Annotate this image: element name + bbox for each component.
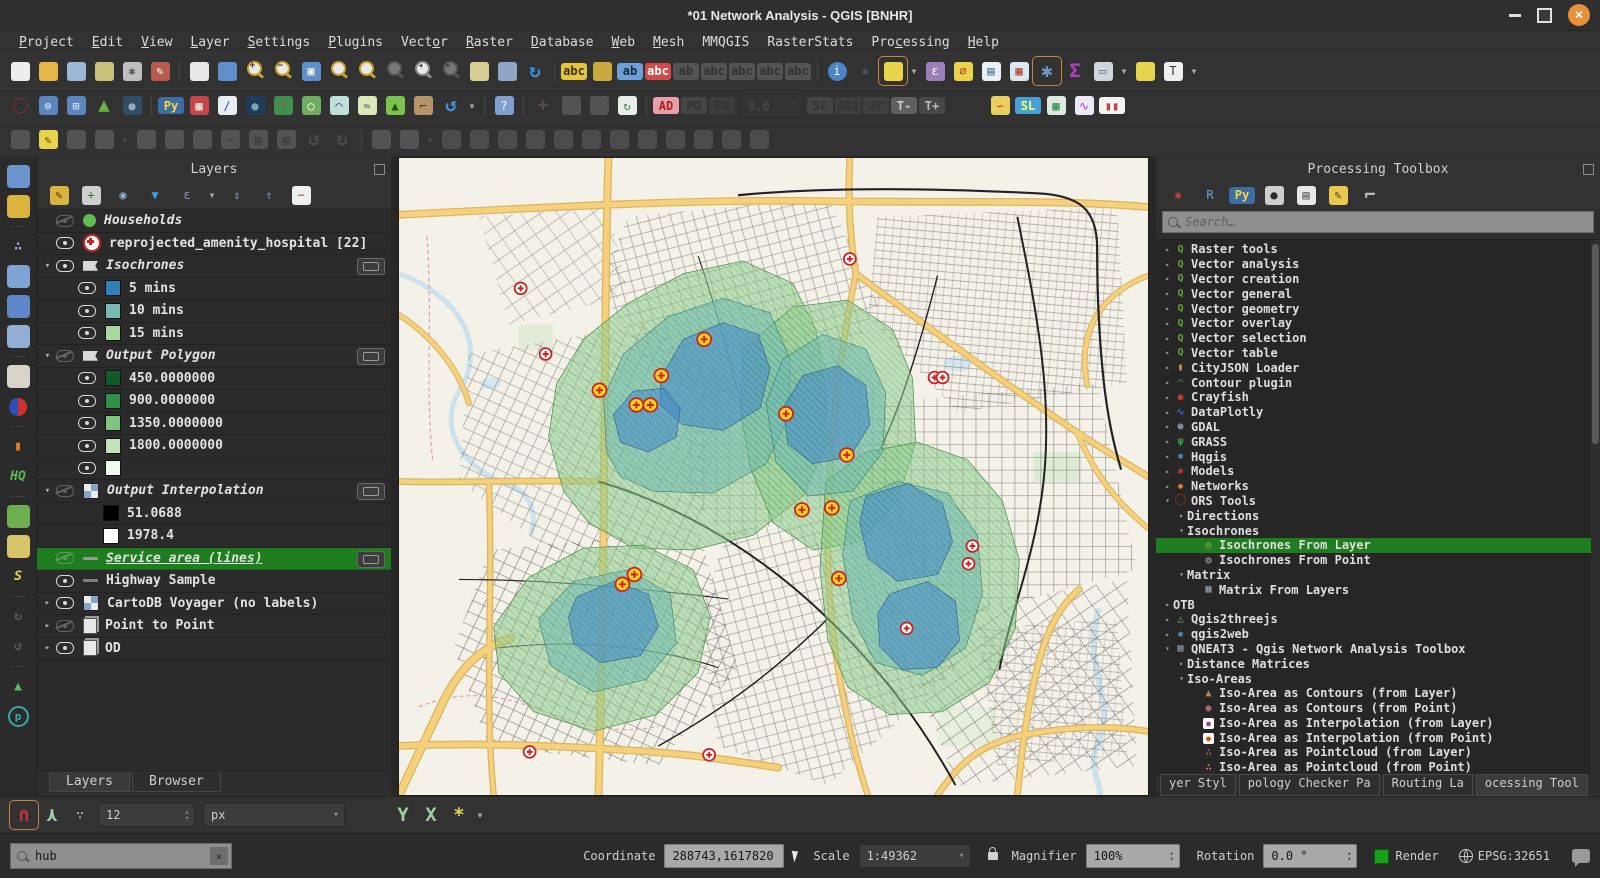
expander-icon[interactable]: ▸ bbox=[1162, 363, 1173, 372]
messages-icon[interactable] bbox=[1572, 849, 1590, 863]
zoom-last-icon[interactable]: ◂ bbox=[410, 58, 436, 84]
algorithm-label: QNEAT3 - Qgis Network Analysis Toolbox bbox=[1191, 642, 1466, 656]
expander-icon[interactable]: ▸ bbox=[1162, 630, 1173, 639]
expression-menu-icon[interactable]: ▾ bbox=[206, 182, 218, 208]
clear-search-icon[interactable]: × bbox=[210, 847, 228, 865]
visibility-eye-icon[interactable] bbox=[56, 597, 74, 609]
expander-icon[interactable]: ▸ bbox=[1162, 452, 1173, 461]
style-manager-icon[interactable]: ✎ bbox=[147, 58, 173, 84]
select-by-expression-icon[interactable]: ε bbox=[922, 58, 948, 84]
qneat-hill-icon[interactable]: ▲ bbox=[382, 93, 408, 119]
attribute-refresh-icon[interactable]: ↻ bbox=[614, 93, 640, 119]
expander-icon[interactable]: ▾ bbox=[1176, 570, 1187, 579]
algorithm-label: Iso-Area as Interpolation (from Layer) bbox=[1219, 716, 1494, 730]
web-service-icon[interactable]: ⊞ bbox=[63, 93, 89, 119]
add-group-icon[interactable]: + bbox=[78, 182, 104, 208]
dock-tab-browser[interactable]: Browser bbox=[132, 772, 221, 792]
expander-icon[interactable]: ▾ bbox=[1176, 526, 1187, 535]
toggle-editing-icon[interactable]: ✎ bbox=[35, 127, 61, 153]
move-label-icon: ab bbox=[673, 58, 699, 84]
edit-features-in-place-icon[interactable]: ✎ bbox=[1325, 182, 1351, 208]
zoom-to-layer-icon[interactable] bbox=[354, 58, 380, 84]
refresh-map-icon[interactable]: ↻ bbox=[522, 58, 548, 84]
visibility-eye-icon[interactable] bbox=[78, 372, 96, 384]
annotation-menu-icon[interactable]: ▾ bbox=[1188, 58, 1200, 84]
expander-icon[interactable]: ▸ bbox=[1162, 408, 1173, 417]
osm-place-search-icon[interactable]: ● bbox=[119, 93, 145, 119]
map-tips-icon[interactable] bbox=[1132, 58, 1158, 84]
zoom-out-icon[interactable]: − bbox=[270, 58, 296, 84]
coordinate-input[interactable]: 288743,1617820 bbox=[664, 844, 784, 868]
layer-row[interactable]: 1978.4 bbox=[37, 525, 391, 548]
layer-row[interactable]: ▾Output Interpolation bbox=[37, 480, 391, 503]
topological-editing-icon[interactable]: ⋏ bbox=[39, 802, 65, 828]
search-layers-icon[interactable]: ○ bbox=[298, 93, 324, 119]
contour-plugin-icon[interactable]: ∽ bbox=[987, 93, 1013, 119]
sld4raster-icon[interactable]: SL bbox=[1015, 93, 1041, 119]
build-tool-icon[interactable]: ⌐ bbox=[410, 93, 436, 119]
filter-legend-icon[interactable]: ▼ bbox=[142, 182, 168, 208]
algorithm-row[interactable]: ▸✱Hqgis bbox=[1156, 449, 1591, 464]
algorithm-label: Networks bbox=[1191, 479, 1249, 493]
deselect-features-icon[interactable]: ∅ bbox=[950, 58, 976, 84]
layer-symbol bbox=[105, 303, 121, 319]
visibility-eye-icon[interactable] bbox=[56, 552, 74, 564]
history-icon[interactable]: ● bbox=[1261, 182, 1287, 208]
vertex-marker-menu-icon[interactable]: ▾ bbox=[474, 802, 486, 828]
expander-icon[interactable]: ▸ bbox=[1162, 482, 1173, 491]
enable-snapping-icon[interactable]: ∩ bbox=[11, 802, 37, 828]
hqgis-icon[interactable]: HQ bbox=[7, 465, 30, 488]
layer-diagram-icon[interactable] bbox=[589, 58, 615, 84]
gdrive-layers-icon[interactable]: ▲ bbox=[7, 675, 30, 698]
expander-icon[interactable]: ▸ bbox=[1176, 511, 1187, 520]
algorithm-row[interactable]: ▾ORS Tools bbox=[1156, 494, 1591, 509]
qgis-window: *01 Network Analysis - QGIS [BNHR] × Pro… bbox=[0, 0, 1600, 878]
algorithm-row[interactable]: ●Iso-Area as Interpolation (from Point) bbox=[1156, 730, 1591, 745]
visibility-eye-icon[interactable] bbox=[56, 485, 74, 497]
crs-globe-icon[interactable] bbox=[1459, 849, 1473, 863]
algorithm-row[interactable]: ▸ψGRASS bbox=[1156, 434, 1591, 449]
processing-tree[interactable]: ▸QRaster tools▸QVector analysis▸QVector … bbox=[1156, 240, 1591, 774]
p-circle-icon[interactable]: p bbox=[7, 705, 30, 728]
layer-row[interactable]: ▸OD bbox=[37, 638, 391, 661]
mmqgis-grid-icon[interactable]: ▦ bbox=[186, 93, 212, 119]
menu-layer[interactable]: Layer bbox=[181, 34, 238, 51]
expander-icon[interactable]: ▸ bbox=[1162, 348, 1173, 357]
measure-menu-icon[interactable]: ▾ bbox=[1118, 58, 1130, 84]
algorithm-row[interactable]: ▲Iso-Area as Contours (from Layer) bbox=[1156, 686, 1591, 701]
menu-database[interactable]: Database bbox=[522, 34, 603, 51]
magnifier-spinbox[interactable]: 100%▴▾ bbox=[1086, 844, 1180, 868]
visibility-eye-icon[interactable] bbox=[78, 440, 96, 452]
algorithm-row[interactable]: ▸∿DataPlotly bbox=[1156, 405, 1591, 420]
algorithm-row[interactable]: ▸QVector general bbox=[1156, 286, 1591, 301]
python-console-icon[interactable]: Py bbox=[158, 93, 184, 119]
profile-tool-icon[interactable]: ∿ bbox=[1071, 93, 1097, 119]
help-contents-icon[interactable]: ? bbox=[491, 93, 517, 119]
expander-icon[interactable]: ▾ bbox=[41, 261, 54, 271]
text-smaller-button[interactable]: T- bbox=[891, 93, 917, 119]
layer-symbol bbox=[105, 370, 121, 386]
add-layer-icon[interactable] bbox=[7, 165, 30, 188]
algorithm-row[interactable]: ▸✱Models bbox=[1156, 464, 1591, 479]
algorithm-row[interactable]: ▸QVector overlay bbox=[1156, 316, 1591, 331]
maximize-button[interactable] bbox=[1537, 8, 1552, 23]
menu-project[interactable]: Project bbox=[10, 34, 83, 51]
expander-icon[interactable]: ▸ bbox=[1162, 378, 1173, 387]
expander-icon[interactable]: ▸ bbox=[1162, 393, 1173, 402]
menu-plugins[interactable]: Plugins bbox=[319, 34, 392, 51]
expander-icon[interactable]: ▸ bbox=[1162, 245, 1173, 254]
algorithm-row[interactable]: ▸QVector table bbox=[1156, 346, 1591, 361]
visibility-eye-icon[interactable] bbox=[78, 462, 96, 474]
layer-row[interactable]: ▸Point to Point bbox=[37, 615, 391, 638]
save-project-icon[interactable] bbox=[63, 58, 89, 84]
algorithm-row[interactable]: ∴Iso-Area as Pointcloud (from Point) bbox=[1156, 760, 1591, 774]
expander-icon[interactable]: ▾ bbox=[1162, 496, 1173, 505]
ors-tools-icon[interactable] bbox=[7, 93, 33, 119]
algorithm-label: Hqgis bbox=[1191, 450, 1227, 464]
algorithm-row[interactable]: ▸▮CityJSON Loader bbox=[1156, 360, 1591, 375]
search-plugin-icon[interactable] bbox=[7, 505, 30, 528]
menu-processing[interactable]: Processing bbox=[862, 34, 958, 51]
layer-symbol bbox=[83, 483, 99, 499]
rotation-spinbox[interactable]: 0.0 °▴▾ bbox=[1263, 844, 1357, 868]
layer-symbol bbox=[83, 579, 98, 582]
statistical-summary-icon[interactable]: Σ bbox=[1062, 58, 1088, 84]
text-annotation-icon[interactable]: T bbox=[1160, 58, 1186, 84]
models-icon[interactable]: ✱ bbox=[1165, 182, 1191, 208]
expander-icon[interactable]: ▸ bbox=[1162, 289, 1173, 298]
layers-panel-header: Layers bbox=[37, 157, 391, 181]
expander-icon[interactable]: ▸ bbox=[1162, 437, 1173, 446]
iso-heat2-icon: ● bbox=[1201, 732, 1216, 744]
pan-to-selection-icon[interactable] bbox=[214, 58, 240, 84]
zoom-to-selection-icon[interactable] bbox=[326, 58, 352, 84]
collapse-all-icon[interactable]: ⇑ bbox=[256, 182, 282, 208]
algorithm-row[interactable]: ▾Isochrones bbox=[1156, 523, 1591, 538]
visibility-eye-icon[interactable] bbox=[78, 327, 96, 339]
dock-tab[interactable]: pology Checker Pa bbox=[1239, 774, 1380, 796]
menu-mmqgis[interactable]: MMQGIS bbox=[693, 34, 758, 51]
minimize-button[interactable] bbox=[1509, 14, 1521, 17]
layer-label: Output Polygon bbox=[106, 348, 216, 363]
detach-panel-icon[interactable] bbox=[374, 164, 385, 175]
algorithm-row[interactable]: ▸✱qgis2web bbox=[1156, 627, 1591, 642]
expand-all-icon[interactable]: ⇕ bbox=[224, 182, 250, 208]
algorithm-row[interactable]: ●Iso-Area as Interpolation (from Layer) bbox=[1156, 716, 1591, 731]
measure-line-icon[interactable]: ▭ bbox=[1090, 58, 1116, 84]
undo-style-icon[interactable]: ↺ bbox=[438, 93, 464, 119]
layer-label: 1978.4 bbox=[127, 528, 174, 543]
visibility-eye-icon[interactable] bbox=[78, 417, 96, 429]
highlight-labels-icon[interactable]: abc bbox=[645, 58, 671, 84]
vertex-marker-star-icon[interactable]: * bbox=[446, 802, 472, 828]
ring-green-icon: ◎ bbox=[1201, 540, 1216, 551]
dock-tab[interactable]: ocessing Tool bbox=[1476, 774, 1588, 796]
expander-icon[interactable]: ▸ bbox=[1162, 467, 1173, 476]
new-project-icon[interactable] bbox=[7, 58, 33, 84]
expander-icon[interactable]: ▸ bbox=[1162, 319, 1173, 328]
render-checkbox[interactable] bbox=[1374, 849, 1389, 864]
layer-row[interactable]: 10 mins bbox=[37, 300, 391, 323]
expander-icon[interactable]: ▸ bbox=[41, 598, 54, 608]
layer-label: 450.0000000 bbox=[129, 371, 215, 386]
q-icon: Q bbox=[1173, 244, 1188, 255]
algorithm-row[interactable]: ▸●GDAL bbox=[1156, 420, 1591, 435]
expander-icon[interactable]: ▾ bbox=[41, 486, 54, 496]
detach-panel-icon[interactable] bbox=[1583, 164, 1594, 175]
algorithm-row[interactable]: ▸Directions bbox=[1156, 508, 1591, 523]
processing-scrollbar[interactable] bbox=[1591, 240, 1600, 774]
advanced-digitizing-toggle[interactable]: AD bbox=[653, 93, 679, 119]
cad-ruler-icon bbox=[368, 127, 394, 153]
adv-digitize-3-icon bbox=[494, 127, 520, 153]
manage-map-themes-icon[interactable]: ◉ bbox=[110, 182, 136, 208]
menu-web[interactable]: Web bbox=[603, 34, 644, 51]
visibility-eye-icon[interactable] bbox=[78, 395, 96, 407]
visibility-eye-icon[interactable] bbox=[56, 215, 74, 227]
visibility-eye-icon[interactable] bbox=[56, 260, 74, 272]
slyr-icon[interactable]: S bbox=[7, 565, 30, 588]
metasearch-icon[interactable]: ⊕ bbox=[35, 93, 61, 119]
matrix-icon: ▦ bbox=[1201, 584, 1216, 595]
algorithm-row[interactable]: ▸●Crayfish bbox=[1156, 390, 1591, 405]
scale-combo[interactable]: 1:49362▾ bbox=[859, 844, 971, 868]
grass-tools-icon[interactable]: * bbox=[270, 93, 296, 119]
open-project-icon[interactable] bbox=[35, 58, 61, 84]
expander-icon[interactable]: ▸ bbox=[1162, 274, 1173, 283]
algorithm-row[interactable]: ▸QVector geometry bbox=[1156, 301, 1591, 316]
algorithm-row[interactable]: ∴Iso-Area as Pointcloud (from Layer) bbox=[1156, 745, 1591, 760]
layer-row[interactable]: ▸CartoDB Voyager (no labels) bbox=[37, 593, 391, 616]
db-manager-icon[interactable] bbox=[7, 365, 30, 388]
net-icon: ◆ bbox=[1173, 481, 1188, 492]
layer-indicator-icon[interactable] bbox=[357, 348, 385, 365]
open-attribute-table-icon[interactable]: ▤ bbox=[978, 58, 1004, 84]
filter-expression-icon[interactable]: ε bbox=[174, 182, 200, 208]
layer-row[interactable]: 900.0000000 bbox=[37, 390, 391, 413]
title-bar[interactable]: *01 Network Analysis - QGIS [BNHR] × bbox=[0, 0, 1600, 31]
snap-self-icon[interactable]: ∵ bbox=[67, 802, 93, 828]
visibility-eye-icon[interactable] bbox=[56, 642, 74, 654]
pan-map-icon[interactable] bbox=[186, 58, 212, 84]
snap-tolerance-spinbox[interactable]: 12▴▾ bbox=[95, 802, 198, 828]
mode-adj-button: ADJ bbox=[835, 93, 861, 119]
undo-style-menu-icon[interactable]: ▾ bbox=[466, 93, 478, 119]
histogram-tool-icon[interactable]: ▮▮ bbox=[1099, 93, 1125, 119]
menu-rasterstats[interactable]: RasterStats bbox=[758, 34, 862, 51]
r-scripts-icon[interactable]: R bbox=[1197, 182, 1223, 208]
expander-icon[interactable]: ▸ bbox=[1162, 304, 1173, 313]
menu-vector[interactable]: Vector bbox=[392, 34, 457, 51]
expander-icon[interactable]: ▾ bbox=[1162, 644, 1173, 653]
algorithm-row[interactable]: ▾▦QNEAT3 - Qgis Network Analysis Toolbox bbox=[1156, 642, 1591, 657]
expander-icon[interactable]: ▾ bbox=[41, 351, 54, 361]
map-canvas[interactable] bbox=[398, 157, 1149, 796]
dataplotly-panel-icon[interactable]: ▮ bbox=[7, 435, 30, 458]
processing-toolbox-icon[interactable]: ✱ bbox=[1034, 58, 1060, 84]
expander-icon[interactable]: ▸ bbox=[1162, 260, 1173, 269]
layer-row[interactable]: ▾Isochrones bbox=[37, 255, 391, 278]
layer-row[interactable]: 1800.0000000 bbox=[37, 435, 391, 458]
zoom-in-icon[interactable]: + bbox=[242, 58, 268, 84]
algorithm-label: Iso-Area as Contours (from Layer) bbox=[1219, 686, 1457, 700]
visibility-eye-icon[interactable] bbox=[56, 620, 74, 632]
cursor-icon bbox=[792, 850, 800, 863]
layer-label: 51.0688 bbox=[127, 506, 182, 521]
reload-icon[interactable]: ↻ bbox=[7, 605, 30, 628]
snap-units-combo[interactable]: px▾ bbox=[200, 802, 348, 828]
dataplotly-icon[interactable]: ∕ bbox=[214, 93, 240, 119]
expander-icon[interactable]: ▸ bbox=[41, 621, 54, 631]
layer-indicator-icon[interactable] bbox=[357, 483, 385, 500]
text-bigger-button[interactable]: T+ bbox=[919, 93, 945, 119]
table-add-icon[interactable]: ▦ bbox=[1043, 93, 1069, 119]
zoom-full-extent-icon[interactable]: ▣ bbox=[298, 58, 324, 84]
layer-row[interactable]: 5 mins bbox=[37, 278, 391, 301]
qgis2threejs-icon[interactable]: ▲ bbox=[91, 93, 117, 119]
algorithm-row[interactable]: ▸OTB bbox=[1156, 597, 1591, 612]
contour-tool-icon[interactable]: ◠ bbox=[326, 93, 352, 119]
algorithm-row[interactable]: ◎Isochrones From Layer bbox=[1156, 538, 1591, 553]
new-bookmark-icon[interactable] bbox=[466, 58, 492, 84]
dock-tab[interactable]: yer Styl bbox=[1160, 774, 1236, 796]
algorithm-row[interactable]: ◎Isochrones From Point bbox=[1156, 553, 1591, 568]
menu-settings[interactable]: Settings bbox=[239, 34, 320, 51]
layer-symbol bbox=[105, 438, 121, 454]
python-scripts-icon[interactable]: Py bbox=[1229, 182, 1255, 208]
algorithm-row[interactable]: ▾Matrix bbox=[1156, 568, 1591, 583]
layer-row[interactable]: ▾Output Polygon bbox=[37, 345, 391, 368]
visibility-eye-icon[interactable] bbox=[56, 237, 74, 249]
menu-mesh[interactable]: Mesh bbox=[644, 34, 693, 51]
visibility-eye-icon[interactable] bbox=[56, 575, 74, 587]
web-catalog-icon[interactable] bbox=[7, 195, 30, 218]
expander-icon[interactable]: ▸ bbox=[1162, 615, 1173, 624]
algorithm-row[interactable]: ▸QRaster tools bbox=[1156, 242, 1591, 257]
menu-help[interactable]: Help bbox=[959, 34, 1008, 51]
algorithm-row[interactable]: ▸QVector selection bbox=[1156, 331, 1591, 346]
close-button[interactable]: × bbox=[1568, 4, 1590, 26]
vertex-marker-semi-icon[interactable]: Y bbox=[390, 802, 416, 828]
virtual-points-icon[interactable]: ∴ bbox=[7, 235, 30, 258]
expander-icon[interactable]: ▸ bbox=[1162, 600, 1173, 609]
save-project-as-icon[interactable] bbox=[91, 58, 117, 84]
field-calculator-icon[interactable]: ▦ bbox=[1006, 58, 1032, 84]
new-mesh-icon[interactable] bbox=[7, 295, 30, 318]
layer-row[interactable]: 15 mins bbox=[37, 323, 391, 346]
algorithm-row[interactable]: ▸△Qgis2threejs bbox=[1156, 612, 1591, 627]
expander-icon[interactable]: ▾ bbox=[1176, 674, 1187, 683]
new-shapefile-icon[interactable] bbox=[7, 265, 30, 288]
menu-view[interactable]: View bbox=[132, 34, 181, 51]
lock-icon[interactable] bbox=[988, 852, 998, 860]
identify-features-icon[interactable]: i bbox=[824, 58, 850, 84]
edit-label-icon: abc bbox=[785, 58, 811, 84]
algorithm-label: Vector geometry bbox=[1191, 302, 1299, 316]
vertex-marker-cross-icon[interactable]: X bbox=[418, 802, 444, 828]
pin-labels-icon[interactable]: ab bbox=[617, 58, 643, 84]
globe-plugin-icon[interactable]: ● bbox=[242, 93, 268, 119]
scrollbar-thumb[interactable] bbox=[1592, 244, 1599, 444]
locator-input[interactable] bbox=[11, 848, 210, 864]
expander-icon[interactable]: ▸ bbox=[1176, 659, 1187, 668]
processing-search-input[interactable] bbox=[1162, 211, 1594, 233]
algorithm-row[interactable]: ▸QVector analysis bbox=[1156, 257, 1591, 272]
osm-editor-icon[interactable] bbox=[7, 535, 30, 558]
expander-icon[interactable]: ▸ bbox=[1162, 422, 1173, 431]
panel-splitter-right[interactable] bbox=[1149, 157, 1156, 796]
project-properties-icon[interactable]: ✱ bbox=[119, 58, 145, 84]
vertex-tool-menu-icon: ▾ bbox=[424, 127, 436, 153]
ors-icon bbox=[1173, 494, 1188, 508]
select-features-menu-icon[interactable]: ▾ bbox=[908, 58, 920, 84]
window-title: *01 Network Analysis - QGIS [BNHR] bbox=[688, 8, 913, 23]
layer-row[interactable]: reprojected_amenity_hospital [22] bbox=[37, 233, 391, 256]
open-layer-styling-icon[interactable]: ✎ bbox=[46, 182, 72, 208]
visibility-eye-icon[interactable] bbox=[78, 305, 96, 317]
menu-raster[interactable]: Raster bbox=[457, 34, 522, 51]
expander-icon[interactable]: ▸ bbox=[1162, 334, 1173, 343]
layer-row[interactable]: Service area (lines) bbox=[37, 548, 391, 571]
crs-value[interactable]: EPSG:32651 bbox=[1478, 849, 1550, 863]
layer-row[interactable]: Highway Sample bbox=[37, 570, 391, 593]
show-bookmarks-icon[interactable] bbox=[494, 58, 520, 84]
new-virtual-layer-icon[interactable] bbox=[7, 325, 30, 348]
layer-row[interactable]: 450.0000000 bbox=[37, 368, 391, 391]
crayfish-icon[interactable]: ≈ bbox=[354, 93, 380, 119]
remove-layer-icon[interactable]: − bbox=[288, 182, 314, 208]
layer-row[interactable]: 1350.0000000 bbox=[37, 413, 391, 436]
layer-indicator-icon[interactable] bbox=[357, 258, 385, 275]
gdal-icon: ● bbox=[1173, 421, 1188, 432]
algorithm-label: Matrix From Layers bbox=[1219, 583, 1349, 597]
algorithm-row[interactable]: ▸Distance Matrices bbox=[1156, 656, 1591, 671]
algorithm-row[interactable]: ▦Matrix From Layers bbox=[1156, 582, 1591, 597]
algorithm-row[interactable]: ▸◠Contour plugin bbox=[1156, 375, 1591, 390]
algorithm-row[interactable]: ▸QVector creation bbox=[1156, 272, 1591, 287]
rollback-icon[interactable]: ↺ bbox=[7, 635, 30, 658]
results-viewer-icon[interactable]: ▤ bbox=[1293, 182, 1319, 208]
layer-indicator-icon[interactable] bbox=[357, 551, 385, 568]
layer-symbol bbox=[105, 460, 121, 476]
layer-row[interactable] bbox=[37, 458, 391, 481]
layer-row[interactable]: Households bbox=[37, 210, 391, 233]
layer-label: reprojected_amenity_hospital [22] bbox=[109, 236, 367, 251]
expander-icon[interactable]: ▸ bbox=[41, 643, 54, 653]
select-features-icon[interactable] bbox=[880, 58, 906, 84]
dock-tab-layers[interactable]: Layers bbox=[49, 772, 130, 792]
visibility-eye-icon[interactable] bbox=[56, 350, 74, 362]
layer-row[interactable]: 51.0688 bbox=[37, 503, 391, 526]
ph-geoportal-icon[interactable] bbox=[7, 395, 30, 418]
options-wrench-icon[interactable]: ⌐ bbox=[1357, 182, 1383, 208]
layers-tree[interactable]: Householdsreprojected_amenity_hospital [… bbox=[37, 209, 391, 772]
layer-symbol bbox=[83, 557, 98, 560]
panel-splitter-left[interactable] bbox=[391, 157, 398, 796]
algorithm-row[interactable]: ●Iso-Area as Contours (from Point) bbox=[1156, 701, 1591, 716]
menu-edit[interactable]: Edit bbox=[83, 34, 132, 51]
algorithm-row[interactable]: ▸◆Networks bbox=[1156, 479, 1591, 494]
visibility-eye-icon[interactable] bbox=[78, 282, 96, 294]
processing-panel-toolbar: ✱RPy●▤✎⌐ bbox=[1156, 181, 1600, 209]
gps-tracker-icon bbox=[558, 93, 584, 119]
algorithm-row[interactable]: ▾Iso-Areas bbox=[1156, 671, 1591, 686]
dock-tab[interactable]: Routing La bbox=[1383, 774, 1473, 796]
layer-labeling-icon[interactable]: abc bbox=[561, 58, 587, 84]
